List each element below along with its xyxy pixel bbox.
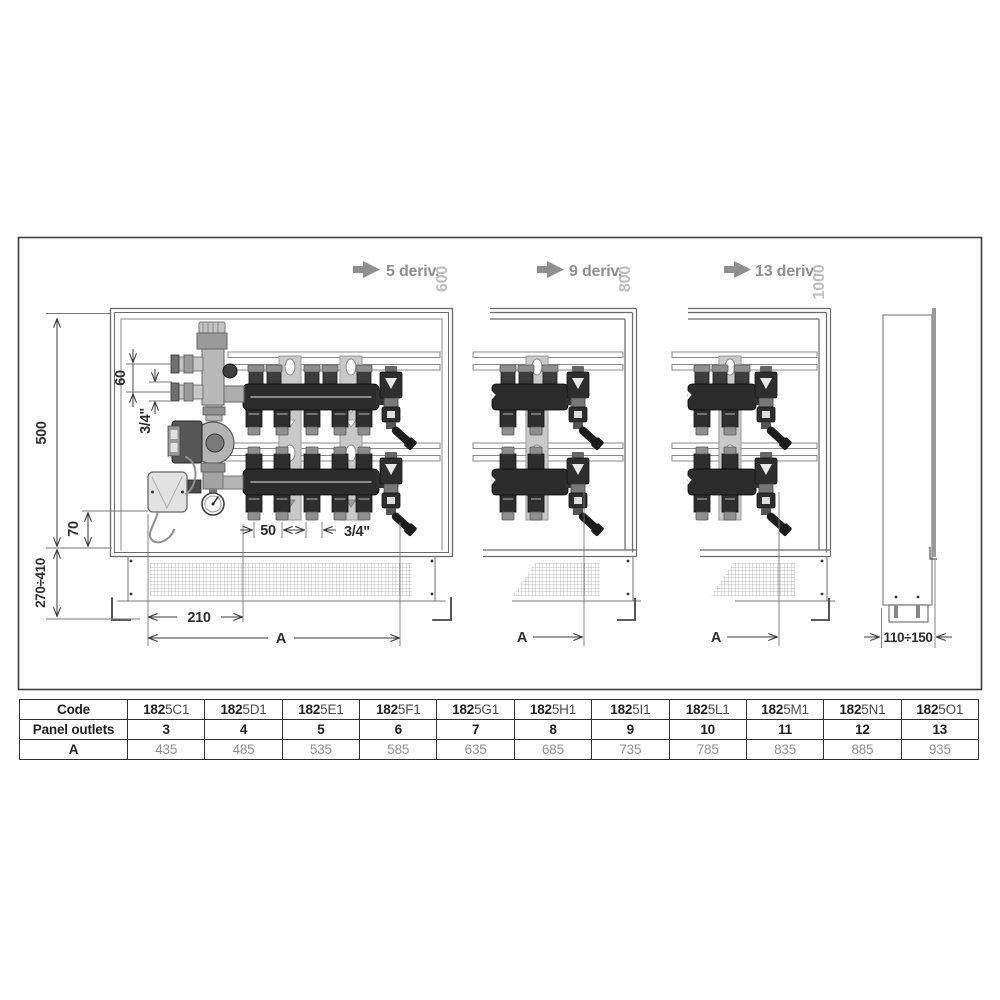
a-cell: 485 — [205, 740, 282, 760]
outlets-cell: 7 — [437, 720, 514, 740]
dim-cabinet-height: 500 — [34, 421, 50, 445]
code-prefix: 182 — [761, 702, 783, 717]
code-cell: 1825M1 — [746, 700, 823, 720]
dim-depth-range: 110÷150 — [884, 630, 933, 645]
code-prefix: 182 — [839, 702, 861, 717]
code-suffix: 5F1 — [398, 702, 421, 717]
code-cell: 1825F1 — [360, 700, 437, 720]
row-header-outlets: Panel outlets — [20, 720, 128, 740]
outlets-cell: 11 — [746, 720, 823, 740]
page: 5 deriv. 600 9 deriv. 800 13 deriv. 1000 — [0, 0, 1000, 1000]
code-prefix: 182 — [452, 702, 474, 717]
code-cell: 1825N1 — [824, 700, 901, 720]
code-suffix: 5L1 — [708, 702, 730, 717]
code-suffix: 5I1 — [632, 702, 650, 717]
code-prefix: 182 — [916, 702, 938, 717]
code-cell: 1825C1 — [128, 700, 205, 720]
code-suffix: 5D1 — [242, 702, 266, 717]
dim-width-a-3: A — [711, 630, 722, 646]
dim-outlet-spacing: 50 — [260, 523, 276, 539]
code-prefix: 182 — [686, 702, 708, 717]
outlets-cell: 4 — [205, 720, 282, 740]
a-cell: 585 — [360, 740, 437, 760]
technical-drawing: 5 deriv. 600 9 deriv. 800 13 deriv. 1000 — [0, 0, 1000, 695]
outlets-cell: 13 — [901, 720, 978, 740]
supply-pipe-bottom — [171, 383, 203, 401]
code-suffix: 5C1 — [165, 702, 189, 717]
table-row-code: Code 1825C1 1825D1 1825E1 1825F1 1825G1 … — [20, 700, 979, 720]
variant-height: 800 — [617, 266, 634, 292]
outlets-cell: 12 — [824, 720, 901, 740]
variant-height: 600 — [434, 266, 451, 292]
outlets-cell: 6 — [360, 720, 437, 740]
code-prefix: 182 — [220, 702, 242, 717]
dim-width-a-1: A — [276, 631, 287, 647]
thermostatic-head — [197, 333, 227, 349]
code-cell: 1825I1 — [592, 700, 669, 720]
outlets-cell: 3 — [128, 720, 205, 740]
variant-name: 5 deriv. — [386, 263, 439, 280]
table-row-outlets: Panel outlets 3 4 5 6 7 8 9 10 11 12 13 — [20, 720, 979, 740]
dim-outlet-size: 3/4" — [344, 524, 370, 540]
row-header-a: A — [20, 740, 128, 760]
code-prefix: 182 — [530, 702, 552, 717]
a-cell: 935 — [901, 740, 978, 760]
outlets-cell: 8 — [514, 720, 591, 740]
code-cell: 1825L1 — [669, 700, 746, 720]
variant-height: 1000 — [811, 264, 828, 299]
code-prefix: 182 — [610, 702, 632, 717]
code-cell: 1825D1 — [205, 700, 282, 720]
a-cell: 435 — [128, 740, 205, 760]
code-suffix: 5E1 — [320, 702, 343, 717]
dim-pipe-size-top: 3/4" — [138, 408, 154, 434]
code-suffix: 5N1 — [861, 702, 885, 717]
a-cell: 635 — [437, 740, 514, 760]
code-cell: 1825E1 — [282, 700, 359, 720]
a-cell: 835 — [746, 740, 823, 760]
code-prefix: 182 — [143, 702, 165, 717]
variant-name: 9 deriv. — [569, 263, 622, 280]
code-cell: 1825G1 — [437, 700, 514, 720]
a-cell: 785 — [669, 740, 746, 760]
a-cell: 735 — [592, 740, 669, 760]
circulation-pump — [168, 421, 234, 464]
cabinet-front-view-1 — [111, 309, 453, 621]
outlets-cell: 5 — [282, 720, 359, 740]
variant-name: 13 deriv. — [755, 263, 817, 280]
junction-box — [148, 472, 187, 512]
outlets-cell: 9 — [592, 720, 669, 740]
dim-box-offset: 70 — [66, 521, 82, 537]
outlets-cell: 10 — [669, 720, 746, 740]
product-table: Code 1825C1 1825D1 1825E1 1825F1 1825G1 … — [19, 699, 979, 760]
a-cell: 885 — [824, 740, 901, 760]
code-cell: 1825H1 — [514, 700, 591, 720]
code-prefix: 182 — [376, 702, 398, 717]
code-suffix: 5O1 — [938, 702, 963, 717]
code-suffix: 5H1 — [552, 702, 576, 717]
code-cell: 1825O1 — [901, 700, 978, 720]
ventilation-grille — [150, 563, 412, 596]
a-cell: 535 — [282, 740, 359, 760]
supply-pipe-top — [171, 355, 203, 373]
row-header-code: Code — [20, 700, 128, 720]
dim-install-range: 270÷410 — [33, 558, 48, 608]
a-cell: 685 — [514, 740, 591, 760]
code-prefix: 182 — [298, 702, 320, 717]
dim-width-a-2: A — [517, 630, 528, 646]
table-row-a: A 435 485 535 585 635 685 735 785 835 88… — [20, 740, 979, 760]
dim-pump-offset: 210 — [187, 610, 211, 626]
code-suffix: 5G1 — [474, 702, 499, 717]
mixing-valve-body — [202, 349, 224, 405]
cabinet-side-view — [883, 308, 937, 622]
code-suffix: 5M1 — [783, 702, 809, 717]
dim-pipe-spacing: 60 — [113, 370, 129, 386]
